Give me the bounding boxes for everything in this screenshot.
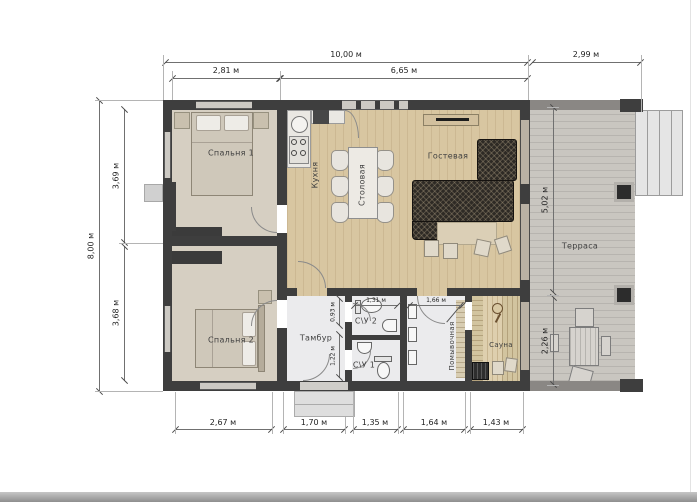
extension-line — [470, 392, 471, 434]
dim-label: 1,31 м — [366, 297, 386, 304]
extension-line — [95, 100, 163, 101]
extension-line — [398, 392, 399, 434]
wash-bench — [456, 300, 465, 378]
wall-terrace-post — [520, 100, 530, 120]
wall-bedrooms — [277, 328, 287, 381]
extension-line — [283, 392, 284, 434]
dim-label: 1,70 м — [301, 418, 327, 427]
terrace-chair — [601, 336, 611, 356]
room-label-tambour: Тамбур — [300, 334, 332, 343]
room-label-guest: Гостевая — [428, 152, 469, 161]
dim-label: 2,99 м — [573, 50, 599, 59]
dim-line — [354, 305, 398, 306]
terrace-corner-block — [620, 379, 643, 392]
terrace-corner-block — [620, 99, 643, 112]
wall-terrace-glazing — [520, 100, 530, 391]
room-label-terrace: Терраса — [562, 242, 598, 251]
extension-line — [547, 385, 559, 386]
wall-greatroom-south — [287, 288, 297, 296]
sofa — [412, 180, 514, 222]
dim-line — [175, 429, 272, 430]
nightstand — [253, 112, 269, 129]
room-label-bedroom1: Спальня 1 — [208, 149, 254, 158]
dim-line — [532, 62, 641, 63]
dim-line — [339, 334, 340, 378]
dim-line — [470, 429, 523, 430]
extension-line — [547, 295, 559, 296]
pouf — [477, 139, 517, 181]
extension-line — [163, 55, 164, 100]
wall-tambour-right — [345, 370, 352, 381]
extension-line — [345, 417, 346, 434]
terrace-chair — [550, 334, 559, 352]
extension-line — [172, 71, 173, 100]
dim-label: 5,02 м — [541, 187, 550, 213]
dim-label: 8,00 м — [87, 233, 96, 259]
floor-plan: Спальня 1 Спальня 2 Кухня Столовая Госте… — [0, 0, 697, 502]
room-label-dining: Столовая — [358, 164, 367, 206]
dim-line — [172, 78, 280, 79]
room-label-wc1: С\У 1 — [353, 361, 375, 370]
room-label-wc2: С\У 2 — [355, 317, 377, 326]
burner-icon — [300, 150, 306, 156]
dim-line — [124, 109, 125, 243]
room-label-bedroom2: Спальня 2 — [208, 336, 254, 345]
shower-panel — [408, 327, 417, 342]
extension-line — [528, 55, 529, 100]
dim-line — [553, 297, 554, 385]
dim-line — [403, 429, 465, 430]
dining-chair — [331, 202, 349, 223]
stool — [424, 240, 439, 257]
sauna-stove — [472, 362, 489, 380]
dining-chair — [331, 150, 349, 171]
wall-tambour-right — [345, 322, 352, 350]
extension-line — [119, 243, 163, 244]
pillow — [224, 115, 249, 131]
extension-line — [403, 392, 404, 434]
terrace-post — [617, 185, 631, 199]
dim-label: 2,81 м — [213, 66, 239, 75]
dining-chair — [376, 150, 394, 171]
dim-line — [409, 305, 463, 306]
extension-line — [280, 71, 281, 100]
kitchen-sink — [291, 116, 308, 133]
pillow — [196, 115, 221, 131]
burner-icon — [291, 139, 297, 145]
dim-line — [124, 246, 125, 381]
extension-line — [547, 107, 559, 108]
wall-between-bedrooms — [163, 236, 287, 246]
terrace-steps — [635, 110, 683, 196]
dining-chair — [376, 202, 394, 223]
wall-pilaster — [163, 182, 176, 231]
wall-terrace-post — [520, 184, 530, 204]
window-bedroom2-bottom — [200, 382, 256, 390]
room-label-kitchen: Кухня — [311, 162, 320, 189]
wall-terrace-post — [520, 280, 530, 302]
page-edge-bottom — [0, 492, 697, 502]
wall-bedrooms — [277, 110, 287, 205]
dim-line — [353, 429, 398, 430]
stool — [443, 243, 458, 259]
window-bedroom1-left — [164, 132, 171, 178]
dim-label: 1,22 м — [330, 346, 337, 366]
extension-line — [641, 55, 642, 112]
tv — [436, 118, 469, 121]
dim-label: 6,65 м — [391, 66, 417, 75]
extension-line — [523, 392, 524, 434]
fridge — [313, 110, 329, 124]
wall-wash-sauna — [465, 296, 472, 302]
wall-wash-sauna — [465, 330, 472, 381]
dim-label: 2,67 м — [210, 418, 236, 427]
page-edge-right — [690, 0, 691, 502]
entrance-door-opening — [300, 382, 348, 390]
dining-chair — [331, 176, 349, 197]
dim-line — [553, 107, 554, 293]
blanket-line — [192, 142, 252, 143]
exterior-vent — [144, 184, 163, 202]
dim-line — [280, 78, 528, 79]
dim-label: 0,93 м — [330, 302, 337, 322]
window-living-top — [342, 100, 408, 110]
dim-label: 2,26 м — [541, 328, 550, 354]
dim-label: 1,35 м — [362, 418, 388, 427]
sink-wc2 — [382, 319, 397, 332]
room-label-sauna: Сауна — [489, 341, 513, 349]
window-bedroom2-left — [164, 306, 171, 352]
dining-chair — [376, 176, 394, 197]
dim-label: 1,64 м — [421, 418, 447, 427]
wall-greatroom-south — [327, 288, 417, 296]
window-bedroom1-top — [196, 101, 252, 109]
extension-line — [465, 392, 466, 434]
sauna-ladle-icon — [492, 303, 503, 314]
sauna-stool — [504, 357, 518, 373]
extension-line — [175, 392, 176, 434]
dim-label: 3,68 м — [112, 300, 121, 326]
terrace-post — [617, 288, 631, 302]
sauna-stool — [492, 361, 504, 375]
dim-line — [99, 100, 100, 392]
dim-label: 3,69 м — [112, 163, 121, 189]
extension-line — [95, 391, 163, 392]
dim-line — [165, 62, 528, 63]
wall-wc-divider — [352, 335, 400, 340]
porch-step-line — [294, 404, 355, 405]
room-label-washroom: Помывочная — [448, 322, 456, 371]
dim-label: 1,43 м — [483, 418, 509, 427]
nightstand — [174, 112, 190, 129]
dim-line — [283, 429, 345, 430]
extension-line — [353, 392, 354, 434]
wall-terrace-post — [520, 370, 530, 391]
terrace-table — [569, 327, 599, 366]
dim-label: 10,00 м — [330, 50, 361, 59]
pillow — [242, 341, 256, 366]
shower-panel — [408, 350, 417, 365]
dim-line — [339, 298, 340, 326]
wall-tambour-right — [345, 296, 352, 302]
extension-line — [272, 392, 273, 434]
terrace-chair — [575, 308, 594, 327]
burner-icon — [300, 139, 306, 145]
toilet-wc1 — [377, 362, 390, 379]
burner-icon — [291, 150, 297, 156]
dim-label: 1,66 м — [426, 297, 446, 304]
wall-greatroom-south — [447, 288, 530, 296]
